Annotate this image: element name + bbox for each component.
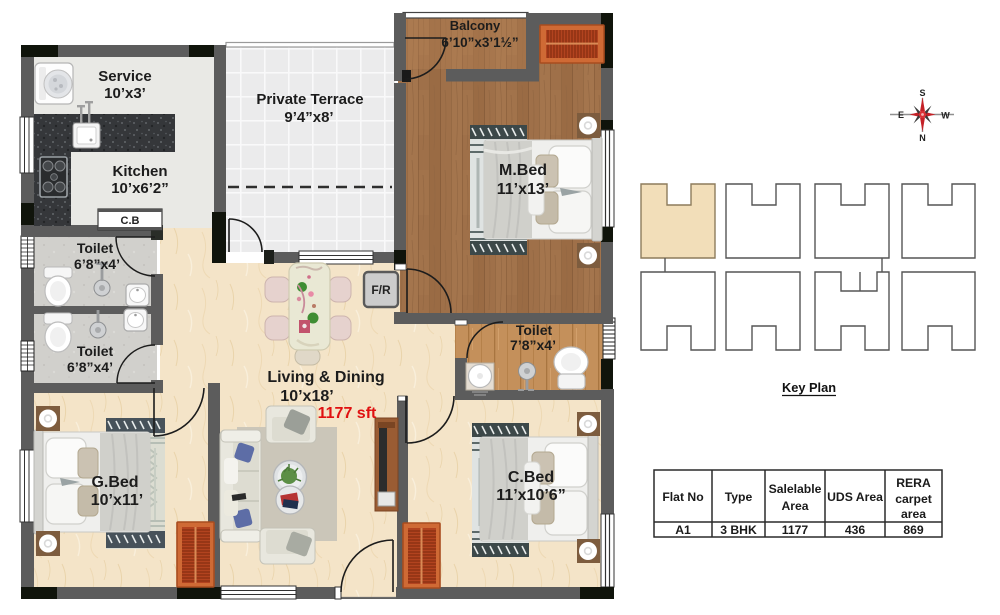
svg-text:10’x18’: 10’x18’ (280, 388, 333, 405)
svg-text:M.Bed: M.Bed (499, 162, 547, 179)
svg-text:Area: Area (781, 499, 808, 513)
svg-text:869: 869 (903, 523, 924, 537)
svg-text:11’x10’6”: 11’x10’6” (496, 487, 565, 504)
svg-text:436: 436 (845, 523, 866, 537)
svg-text:11’x13’: 11’x13’ (497, 181, 550, 198)
svg-text:Toilet: Toilet (516, 322, 553, 338)
svg-text:Service: Service (98, 68, 151, 85)
svg-text:Flat No: Flat No (662, 490, 703, 504)
svg-text:Salelable: Salelable (769, 482, 822, 496)
svg-text:UDS Area: UDS Area (827, 490, 883, 504)
svg-text:C.Bed: C.Bed (508, 469, 554, 486)
svg-text:3 BHK: 3 BHK (720, 523, 757, 537)
svg-text:Kitchen: Kitchen (112, 163, 167, 180)
svg-text:1177 sft: 1177 sft (318, 405, 377, 422)
svg-text:10’x6’2”: 10’x6’2” (111, 180, 169, 197)
svg-text:1177: 1177 (782, 523, 809, 537)
svg-text:Type: Type (725, 490, 753, 504)
svg-text:9’4”x8’: 9’4”x8’ (284, 109, 333, 126)
svg-text:C.B: C.B (121, 215, 140, 227)
svg-text:A1: A1 (675, 523, 691, 537)
svg-text:G.Bed: G.Bed (91, 474, 138, 491)
svg-text:carpet: carpet (895, 492, 932, 506)
svg-text:Balcony: Balcony (450, 18, 501, 33)
svg-text:Living & Dining: Living & Dining (267, 369, 384, 386)
svg-text:area: area (901, 507, 926, 521)
svg-text:Toilet: Toilet (77, 343, 114, 359)
svg-text:10’x11’: 10’x11’ (91, 492, 144, 509)
svg-text:RERA: RERA (896, 476, 931, 490)
svg-text:6’10”x3’1½”: 6’10”x3’1½” (441, 35, 518, 50)
svg-text:Private Terrace: Private Terrace (256, 91, 363, 108)
svg-text:N: N (919, 133, 926, 143)
svg-text:E: E (898, 110, 904, 120)
svg-text:Key Plan: Key Plan (782, 380, 836, 395)
svg-text:6’8”x4’: 6’8”x4’ (67, 359, 113, 375)
svg-text:7’8”x4’: 7’8”x4’ (510, 337, 556, 353)
svg-text:10’x3’: 10’x3’ (104, 85, 146, 102)
svg-text:Toilet: Toilet (77, 240, 114, 256)
svg-text:F/R: F/R (371, 283, 391, 297)
svg-text:W: W (941, 111, 950, 121)
svg-text:S: S (919, 88, 925, 98)
svg-text:6’8”x4’: 6’8”x4’ (74, 256, 120, 272)
